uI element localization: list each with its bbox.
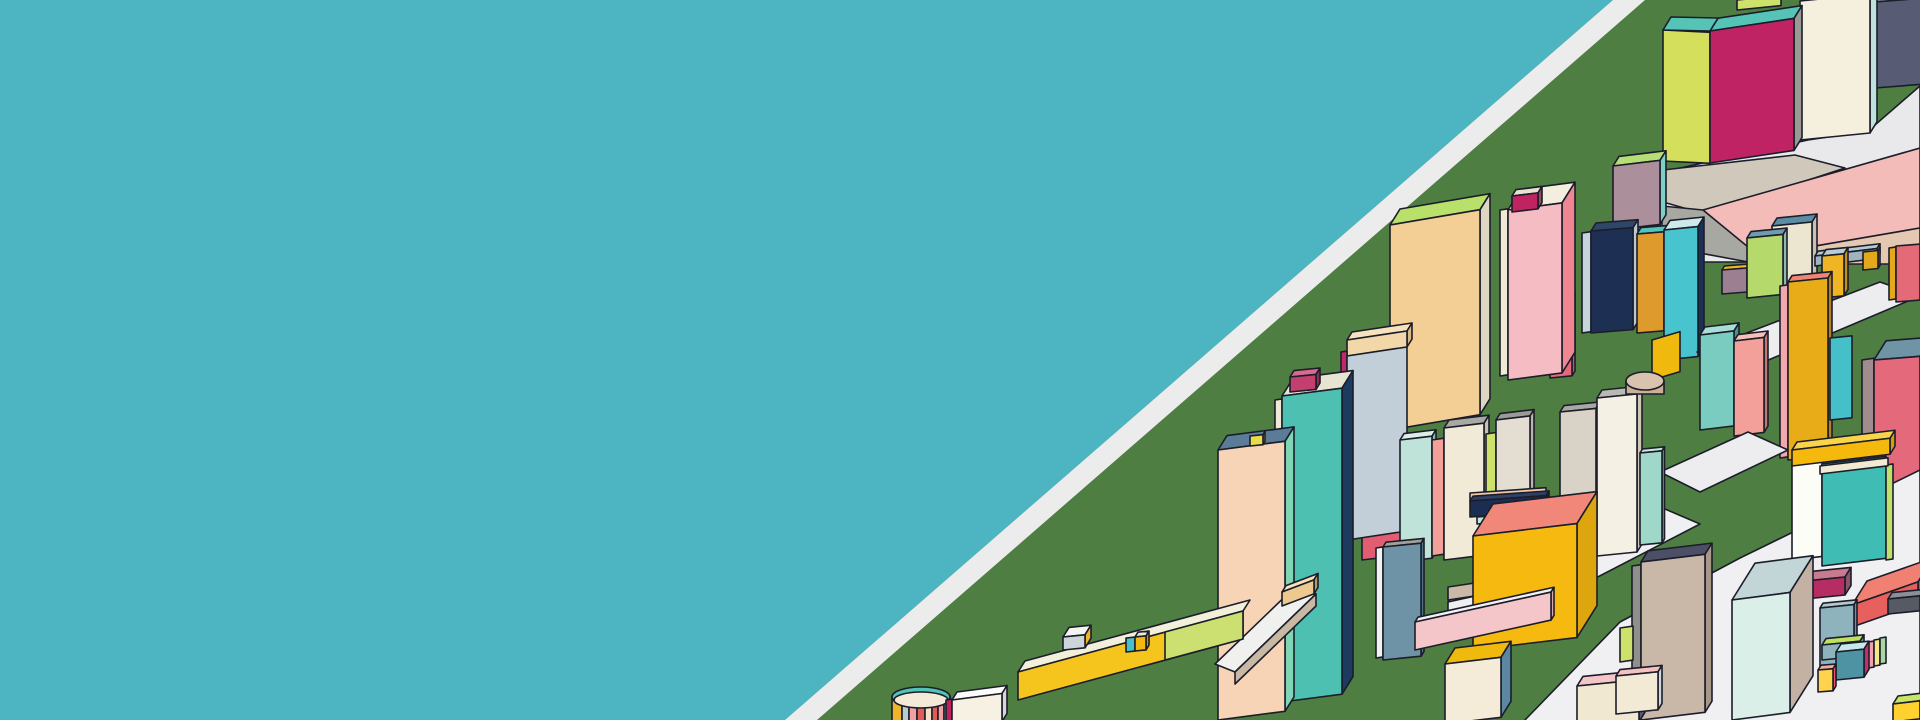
tower-mint [1700,323,1739,430]
city-illustration [0,0,1920,720]
tower-navy-strip [1582,232,1591,333]
slab-lime-corner [1893,693,1920,720]
tower-magenta [1710,6,1802,163]
sliver-salmon [1432,438,1444,556]
tower-white [1597,386,1642,556]
hero-illustration [0,0,1920,720]
tower-pink-left-sliver [1500,209,1508,376]
bldg-L-lime-sliver [1886,464,1893,560]
slab-darkgray [1888,589,1920,614]
bldg-rose-edge [1896,244,1920,302]
bldg-bluegray [1347,347,1407,540]
tower-peach [1218,427,1294,720]
sliver-lime2 [1620,626,1633,662]
tower-slate [1875,0,1920,88]
slab-cyan [1836,641,1869,680]
cube-yellow-small [1445,641,1511,720]
box-palemint [1732,556,1813,720]
minibox-gray-yellow [1063,625,1091,650]
tower-lime-face [1663,30,1710,163]
house-mauve [1613,151,1666,230]
bldg-mustard-edge-sliver [1889,247,1896,300]
strip-pink [1780,285,1788,458]
stripe-yellow-sliver [1874,639,1880,666]
cylinder-striped [892,687,950,720]
box-pinktop [1616,665,1662,714]
wedge-yellow [1652,332,1680,380]
bldg-L-white-part [1792,460,1822,560]
tower-amber [1788,272,1832,460]
blob-tan-top [1626,372,1664,390]
sliver-white2 [1376,547,1383,658]
tower-magenta-roof-ext [1663,17,1718,31]
cube-mauve [1722,264,1750,294]
tower-salmon [1734,331,1768,436]
roof-raspberry [1290,368,1320,392]
tower-mint-small [1640,447,1665,545]
minibox-teal-sliver [1126,637,1135,652]
tower-pink-cap [1512,186,1542,212]
tower-cream [1800,0,1877,140]
box-coral-tiny [1818,664,1836,692]
stripe-green-sliver [1880,637,1886,664]
tower-navy [1591,220,1638,333]
sliver-teal [1830,336,1852,420]
minibox-yellow [1135,631,1149,651]
minibox-magenta-sliver [946,699,952,720]
